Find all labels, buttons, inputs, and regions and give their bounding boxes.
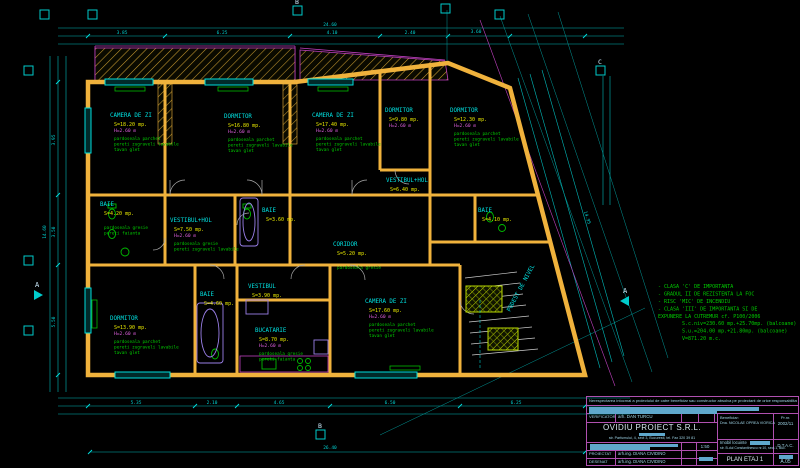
dimension-text: 2.40: [405, 30, 416, 36]
room-finish-note: pardoseala gresie: [104, 225, 148, 231]
proiectat-label: PROIECTAT: [589, 452, 611, 456]
note-line: - GRADUL II DE REZISTENTA LA FOC: [658, 292, 754, 298]
area-summary-line: S.u.=204.00 mp.+21.80mp. (balcoane): [682, 329, 787, 335]
room-area: S=13.90 mp.: [114, 325, 147, 331]
room-height: H=2.60 m: [454, 123, 476, 129]
dimension-text: 3.50: [51, 226, 57, 237]
room-label: BAIES=4.20 mp.pardoseala gresiepereti fa…: [100, 202, 148, 237]
room-area: S=4.10 mp.: [482, 217, 512, 223]
desenat-name: arh.ing. DIANA CIVIDINO: [618, 460, 665, 464]
room-finish-note: pardoseala parchet: [114, 136, 161, 142]
room-finish-note: pereti zugraveli lavabile: [114, 142, 179, 148]
project-number-value: 2002/11: [773, 422, 798, 426]
room-finish-note: pardoseala parchet: [228, 137, 275, 143]
grid-marker-label: B: [318, 422, 322, 430]
room-name: CAMERA DE ZI: [110, 113, 152, 119]
room-label: VESTIBUL+HOLS=7.50 mp.H=2.60 mpardoseala…: [170, 218, 239, 253]
verificator-label: VERIFICATOR: [589, 415, 616, 419]
room-label: CAMERA DE ZIS=17.40 mp.H=2.60 mpardoseal…: [312, 113, 381, 153]
room-area: S=3.90 mp.: [252, 293, 282, 299]
grid-marker: B: [316, 422, 325, 439]
grid-marker: [441, 4, 450, 13]
highlight-bar: [750, 441, 770, 445]
phase-value: D.T.A.C.: [773, 444, 798, 448]
room-finish-note: pereti faianta: [104, 231, 141, 237]
room-finish-note: pardoseala gresie: [337, 265, 381, 271]
room-label: VESTIBUL+HOLS=6.40 mp.: [386, 178, 428, 193]
room-name: CAMERA DE ZI: [365, 299, 407, 305]
room-area: S=12.30 mp.: [454, 117, 487, 123]
dimension-text: 3.95: [51, 134, 57, 145]
project-number-label: Pr.nr.: [773, 416, 798, 420]
beneficiar-name: Dna. NICOLAE OPREA VIORICA: [720, 422, 775, 426]
room-name: CORIDOR: [333, 242, 358, 248]
room-area: S=17.60 mp.: [369, 308, 402, 314]
sheet-title: PLAN ETAJ 1: [717, 457, 773, 463]
room-name: BAIE: [478, 208, 492, 214]
room-label: DORMITORS=12.30 mp.H=2.60 mpardoseala pa…: [450, 108, 519, 148]
room-finish-note: pereti zugraveli lavabile: [369, 328, 434, 334]
room-finish-note: pereti zugraveli lavabile: [114, 345, 179, 351]
grid-marker: C: [596, 58, 605, 75]
room-name: DORMITOR: [450, 108, 478, 114]
dimension-text: 4.10: [327, 30, 338, 36]
grid-marker: [24, 326, 33, 335]
highlight-bar: [779, 455, 793, 459]
room-finish-note: tavan glet: [114, 350, 140, 356]
room-finish-note: pardoseala gresie: [259, 351, 303, 357]
dimension-text: 6.25: [217, 30, 228, 36]
room-area: S=5.20 mp.: [337, 251, 367, 257]
room-area: S=4.20 mp.: [104, 211, 134, 217]
room-finish-note: tavan glet: [114, 147, 140, 153]
company-name: OVIDIU PROIECT S.R.L.: [589, 424, 715, 432]
section-marker-label: A: [35, 281, 40, 289]
balconies: [95, 48, 448, 144]
room-height: H=2.60 m: [389, 123, 411, 129]
dimension-text: 3.85: [117, 30, 128, 36]
grid-marker: [495, 10, 504, 19]
highlight-bar: [590, 447, 650, 450]
room-finish-note: pardoseala parchet: [454, 131, 501, 137]
room-finish-note: pardoseala gresie: [174, 241, 218, 247]
room-label: BAIES=4.10 mp.: [478, 208, 512, 223]
section-marker-label: A: [623, 287, 628, 295]
grid-marker-label: C: [598, 58, 602, 66]
room-height: H=2.60 m: [114, 331, 136, 337]
room-label: DORMITORS=13.90 mp.H=2.60 mpardoseala pa…: [110, 316, 179, 356]
grid-marker-label: B: [295, 0, 299, 6]
dimension-text: 2.10: [207, 400, 218, 406]
room-name: BAIE: [200, 292, 214, 298]
sheet-number: A.05: [773, 460, 798, 465]
note-line: - CLASA 'III' DE IMPORTANTA SI DE: [658, 307, 757, 313]
room-name: BAIE: [262, 208, 276, 214]
room-name: VESTIBUL+HOL: [386, 178, 428, 184]
room-finish-note: tavan glet: [316, 147, 342, 153]
room-height: H=2.60 m: [259, 343, 281, 349]
room-area: S=9.80 mp.: [389, 117, 419, 123]
area-summary-line: S.c.niv=230.60 mp.+25.70mp. (balcoane): [682, 321, 796, 327]
room-height: H=2.60 m: [228, 129, 250, 135]
highlight-bar: [699, 457, 713, 461]
room-name: DORMITOR: [385, 108, 413, 114]
room-name: BAIE: [100, 202, 114, 208]
room-label: CORIDORS=5.20 mp.pardoseala gresie: [333, 242, 381, 271]
room-finish-note: tavan glet: [369, 333, 395, 339]
highlight-bar: [589, 407, 759, 411]
verificator-name: arh. DAN TURCU: [618, 415, 653, 419]
note-line: - CLASA 'C' DE IMPORTANTA: [658, 284, 733, 290]
note-line: - RISC 'MIC' DE INCENDIU: [658, 299, 730, 305]
room-area: S=8.70 mp.: [259, 337, 289, 343]
dimension-text: 14.95: [582, 210, 592, 225]
room-finish-note: pereti zugraveli lavabile: [228, 143, 293, 149]
room-name: VESTIBUL+HOL: [170, 218, 212, 224]
general-notes: - CLASA 'C' DE IMPORTANTA- GRADUL II DE …: [658, 284, 796, 342]
dimension-text: 24.60: [323, 22, 337, 28]
grid-marker: [88, 10, 97, 19]
company-address: str. Parfumului, 4, sect 3, Bucuresti, t…: [589, 437, 715, 441]
proiectat-name: arh.ing. DIANA CIVIDINO: [618, 452, 665, 456]
scale-value: 1:50: [696, 445, 714, 450]
room-area: S=17.40 mp.: [316, 122, 349, 128]
room-label: DORMITORS=9.80 mp.H=2.60 m: [385, 108, 419, 129]
title-block: Nerespectarea intocmai a proiectului de …: [586, 396, 799, 466]
dimension-text: 26.40: [323, 445, 337, 451]
room-finish-note: pereti zugraveli lavabile: [454, 137, 519, 143]
room-finish-note: tavan glet: [228, 148, 254, 154]
grid-marker: [40, 10, 49, 19]
desenat-label: DESENAT: [589, 460, 608, 464]
dimension-text: 3.60: [471, 29, 482, 35]
room-height: H=2.60 m: [316, 128, 338, 134]
room-name: CAMERA DE ZI: [312, 113, 354, 119]
room-label: VESTIBULS=3.90 mp.: [248, 284, 282, 299]
cad-application-viewport[interactable]: CAMERA DE ZIS=18.20 mp.H=2.60 mpardoseal…: [0, 0, 800, 468]
project-title: Imobil locuinte: [720, 441, 747, 445]
dimension-text: 5.50: [51, 316, 57, 327]
disclaimer-text: Nerespectarea intocmai a proiectului de …: [589, 399, 797, 403]
room-area: S=7.50 mp.: [174, 227, 204, 233]
room-height: H=2.60 m: [174, 233, 196, 239]
room-area: S=3.60 mp.: [266, 217, 296, 223]
room-finish-note: pereti zugraveli lavabile: [174, 247, 239, 253]
dimension-text: 6.50: [385, 400, 396, 406]
dimension-text: 4.65: [274, 400, 285, 406]
room-label: CAMERA DE ZIS=17.60 mp.H=2.60 mpardoseal…: [365, 299, 434, 339]
area-summary-line: V=871.20 m.c.: [682, 336, 721, 342]
room-name: DORMITOR: [224, 114, 252, 120]
room-finish-note: tavan glet: [454, 142, 480, 148]
room-name: BUCATARIE: [255, 328, 287, 334]
room-area: S=18.20 mp.: [114, 122, 147, 128]
room-name: VESTIBUL: [248, 284, 276, 290]
room-label: BUCATARIES=8.70 mp.H=2.60 mpardoseala gr…: [255, 328, 303, 363]
note-line: EXPUNERE LA CUTREMUR cf. P100/2006: [658, 314, 760, 320]
room-finish-note: pereti faianta: [259, 357, 296, 363]
room-area: S=4.60 mp.: [204, 301, 234, 307]
grid-marker: A: [34, 281, 43, 300]
grid-marker: [24, 66, 33, 75]
beneficiar-label: Beneficiar:: [720, 416, 739, 420]
room-height: H=2.60 m: [114, 128, 136, 134]
dimension-text: 5.35: [131, 400, 142, 406]
room-finish-note: pereti zugraveli lavabile: [316, 142, 381, 148]
dimension-text: 14.60: [42, 225, 48, 239]
grid-marker: B: [293, 0, 302, 15]
room-height: H=2.60 m: [369, 314, 391, 320]
room-label: BAIES=4.60 mp.: [200, 292, 234, 307]
grid-marker: A: [620, 287, 629, 306]
grid-marker: [24, 256, 33, 265]
room-area: S=16.80 mp.: [228, 123, 261, 129]
staircase: [465, 272, 538, 368]
project-address: str. B-dul Constantinescu nr.10, sect.1,…: [720, 447, 772, 450]
room-area: S=6.40 mp.: [390, 187, 420, 193]
room-finish-note: pardoseala parchet: [114, 339, 161, 345]
dimension-text: 6.25: [511, 400, 522, 406]
room-finish-note: pardoseala parchet: [369, 322, 416, 328]
room-finish-note: pardoseala parchet: [316, 136, 363, 142]
room-name: DORMITOR: [110, 316, 138, 322]
